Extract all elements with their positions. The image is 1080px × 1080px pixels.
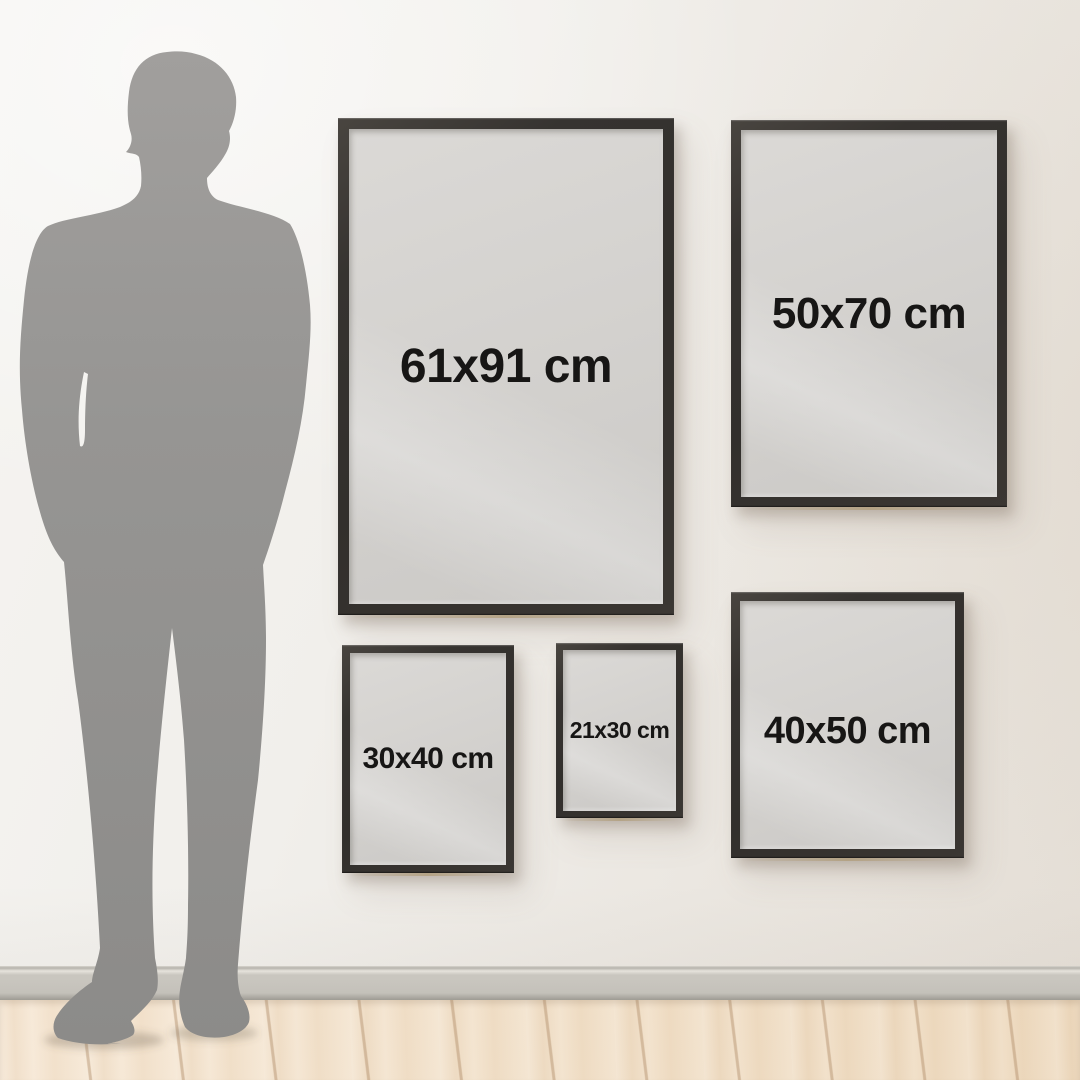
poster-21x30: 21x30 cm — [563, 650, 676, 811]
frame-30x40: 30x40 cm — [342, 645, 514, 873]
scene: 61x91 cm 50x70 cm 30x40 cm 21x30 cm 40x5… — [0, 0, 1080, 1080]
frame-61x91: 61x91 cm — [338, 118, 674, 615]
size-label-50x70: 50x70 cm — [772, 289, 966, 339]
frame-21x30: 21x30 cm — [556, 643, 683, 818]
poster-30x40: 30x40 cm — [350, 653, 506, 865]
poster-40x50: 40x50 cm — [740, 601, 955, 849]
frame-40x50: 40x50 cm — [731, 592, 964, 858]
size-label-61x91: 61x91 cm — [400, 339, 612, 394]
poster-50x70: 50x70 cm — [741, 130, 997, 497]
frame-50x70: 50x70 cm — [731, 120, 1007, 507]
size-label-30x40: 30x40 cm — [362, 742, 493, 776]
wood-floor — [0, 1000, 1080, 1080]
poster-61x91: 61x91 cm — [349, 129, 663, 604]
baseboard — [0, 966, 1080, 1000]
size-label-40x50: 40x50 cm — [764, 710, 931, 753]
size-label-21x30: 21x30 cm — [570, 717, 670, 744]
